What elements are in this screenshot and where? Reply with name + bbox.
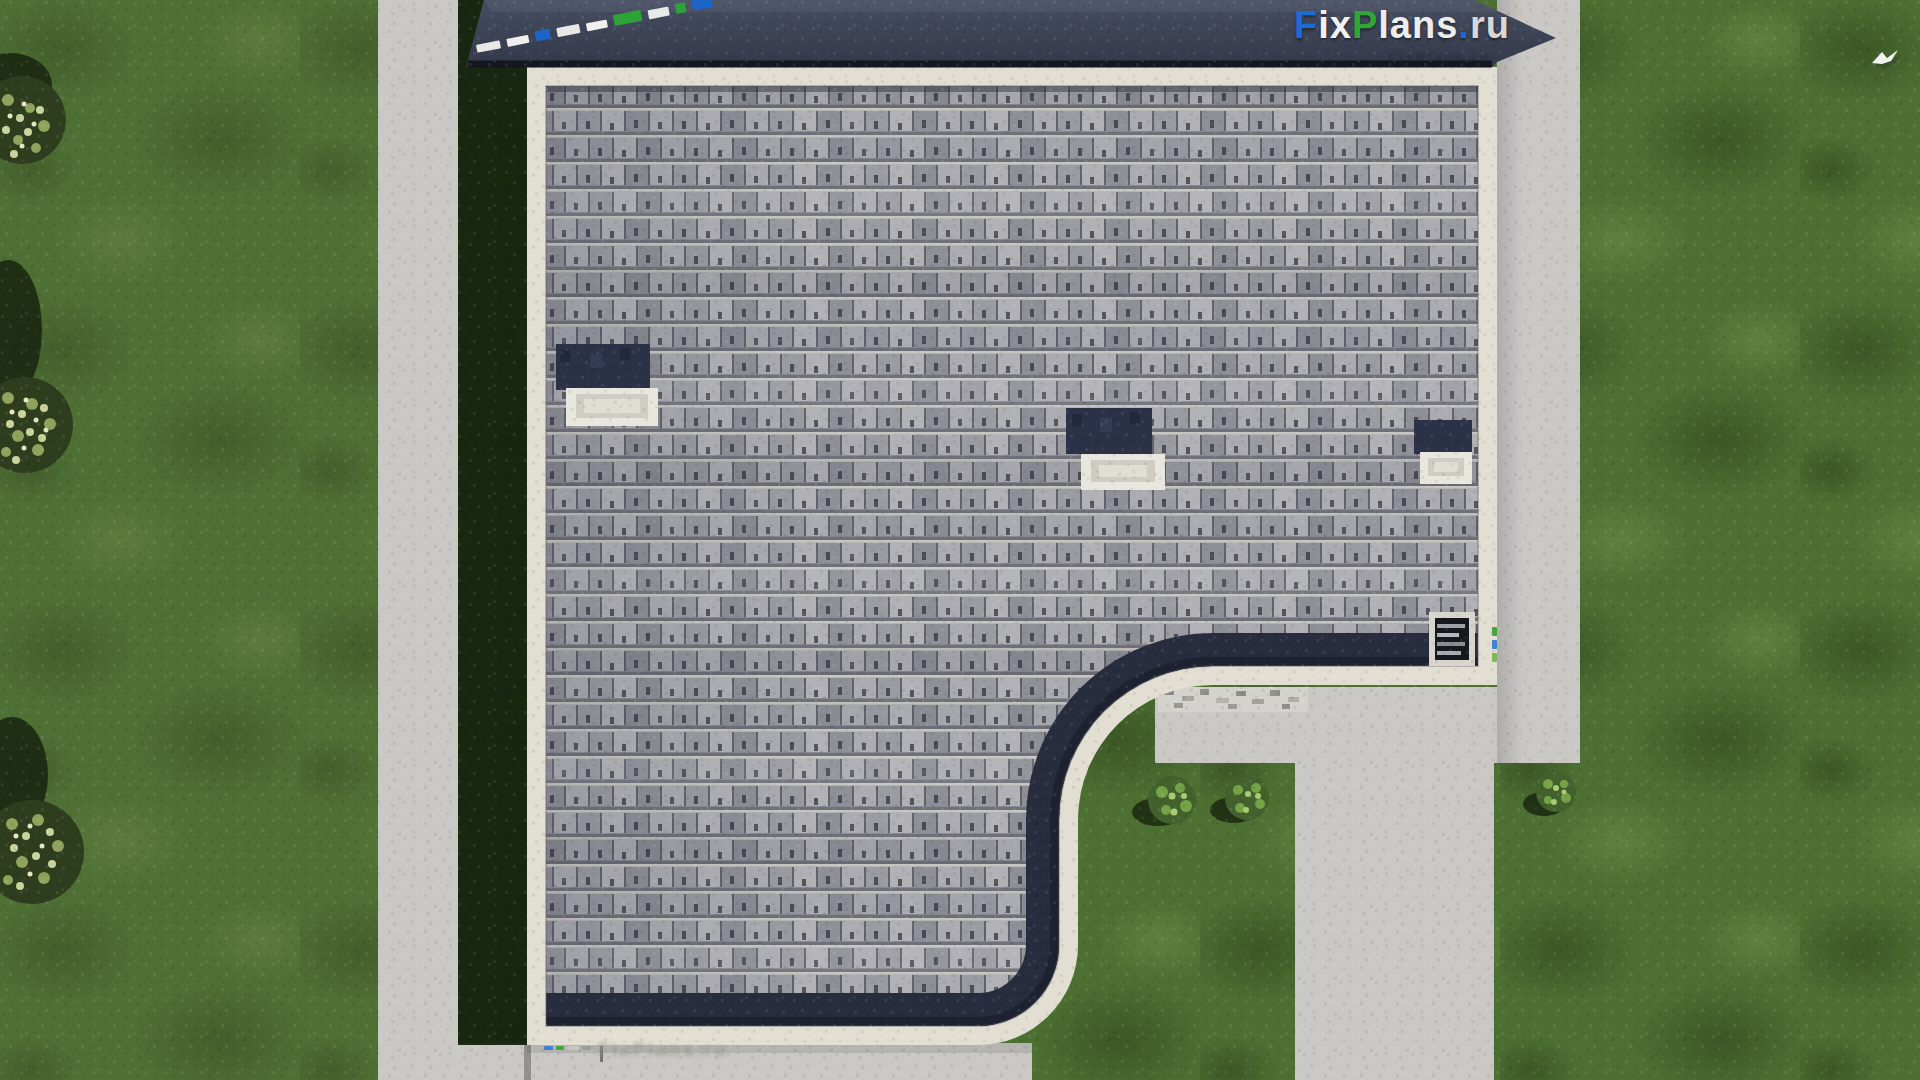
logo-part: F [1294,4,1318,46]
watermark-block [1492,640,1497,649]
watermark-block [582,1046,591,1050]
brand-logo: FixPlans.ru [1294,4,1510,47]
watermark-block [556,1046,564,1050]
watermark-block [544,1046,553,1050]
watermark-block [1492,653,1497,662]
logo-part: lans [1378,4,1458,46]
watermark-logo-shadow: FixPlans.ru [1388,48,1491,65]
logo-part: . [1458,4,1470,46]
watermark-edge-blocks [1492,627,1497,662]
logo-part: ix [1318,4,1352,46]
render-stage: FixPlans.ru FixPlans.ru FixPlans.ru [0,0,1920,1080]
watermark-block [567,1046,579,1050]
watermark-block [1492,627,1497,636]
grain-overlay [0,0,1920,1080]
logo-part: ru [1470,4,1510,46]
watermark-block [675,2,687,14]
scene-svg [0,0,1920,1080]
watermark-ground-text: FixPlans.ru [598,1040,728,1061]
logo-part: P [1352,4,1378,46]
watermark-ground-blocks [544,1046,591,1050]
